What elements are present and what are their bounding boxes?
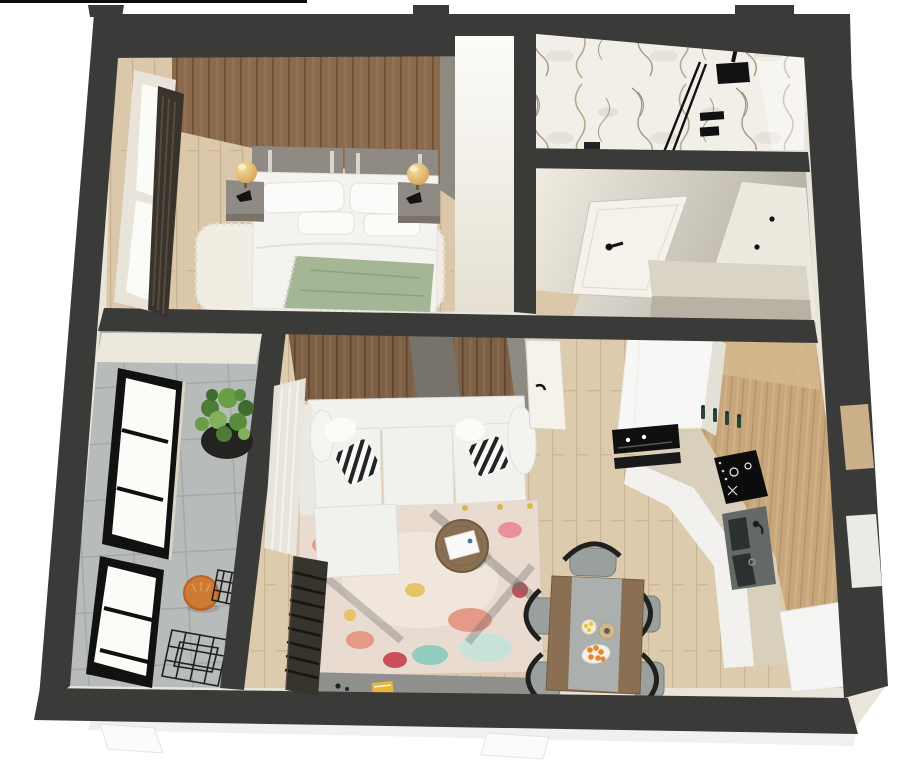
- floorplan-svg: [0, 0, 924, 771]
- wall-bump-mid: [413, 5, 449, 17]
- sofa-cushion-2: [382, 426, 454, 506]
- sage-throw-blanket: [284, 256, 434, 312]
- floorplan-render: [0, 0, 924, 771]
- partition-bedroom-hall: [514, 30, 536, 314]
- living-door: [526, 340, 566, 430]
- wall-bump-left: [88, 5, 124, 17]
- coffee-table-decor: [468, 539, 473, 544]
- slab-foot-left: [100, 724, 163, 753]
- right-wall-window-cutout-2: [846, 514, 882, 588]
- balcony-window-2: [86, 556, 164, 688]
- built-in-oven: [612, 424, 681, 469]
- room-hallway: [536, 168, 816, 330]
- partition-bath-hall: [516, 148, 810, 172]
- right-wall-window-cutout-1: [840, 404, 874, 470]
- top-edge-line: [0, 0, 307, 3]
- wardrobe-handle-2: [754, 244, 759, 249]
- tall-white-cabinet: [618, 334, 726, 436]
- floor-drain: [584, 142, 600, 150]
- wall-bump-right: [735, 5, 794, 17]
- balcony-wall-face: [96, 333, 262, 364]
- shower-head: [716, 62, 750, 84]
- throw-pillow-white-2: [455, 419, 485, 441]
- outer-wall-top-left: [94, 14, 514, 58]
- wardrobe-handle-1: [769, 216, 774, 221]
- slab-foot-right: [481, 733, 549, 759]
- wardrobe-column: [455, 36, 514, 312]
- low-cabinet-top: [648, 260, 810, 300]
- headboard-left: [252, 146, 343, 176]
